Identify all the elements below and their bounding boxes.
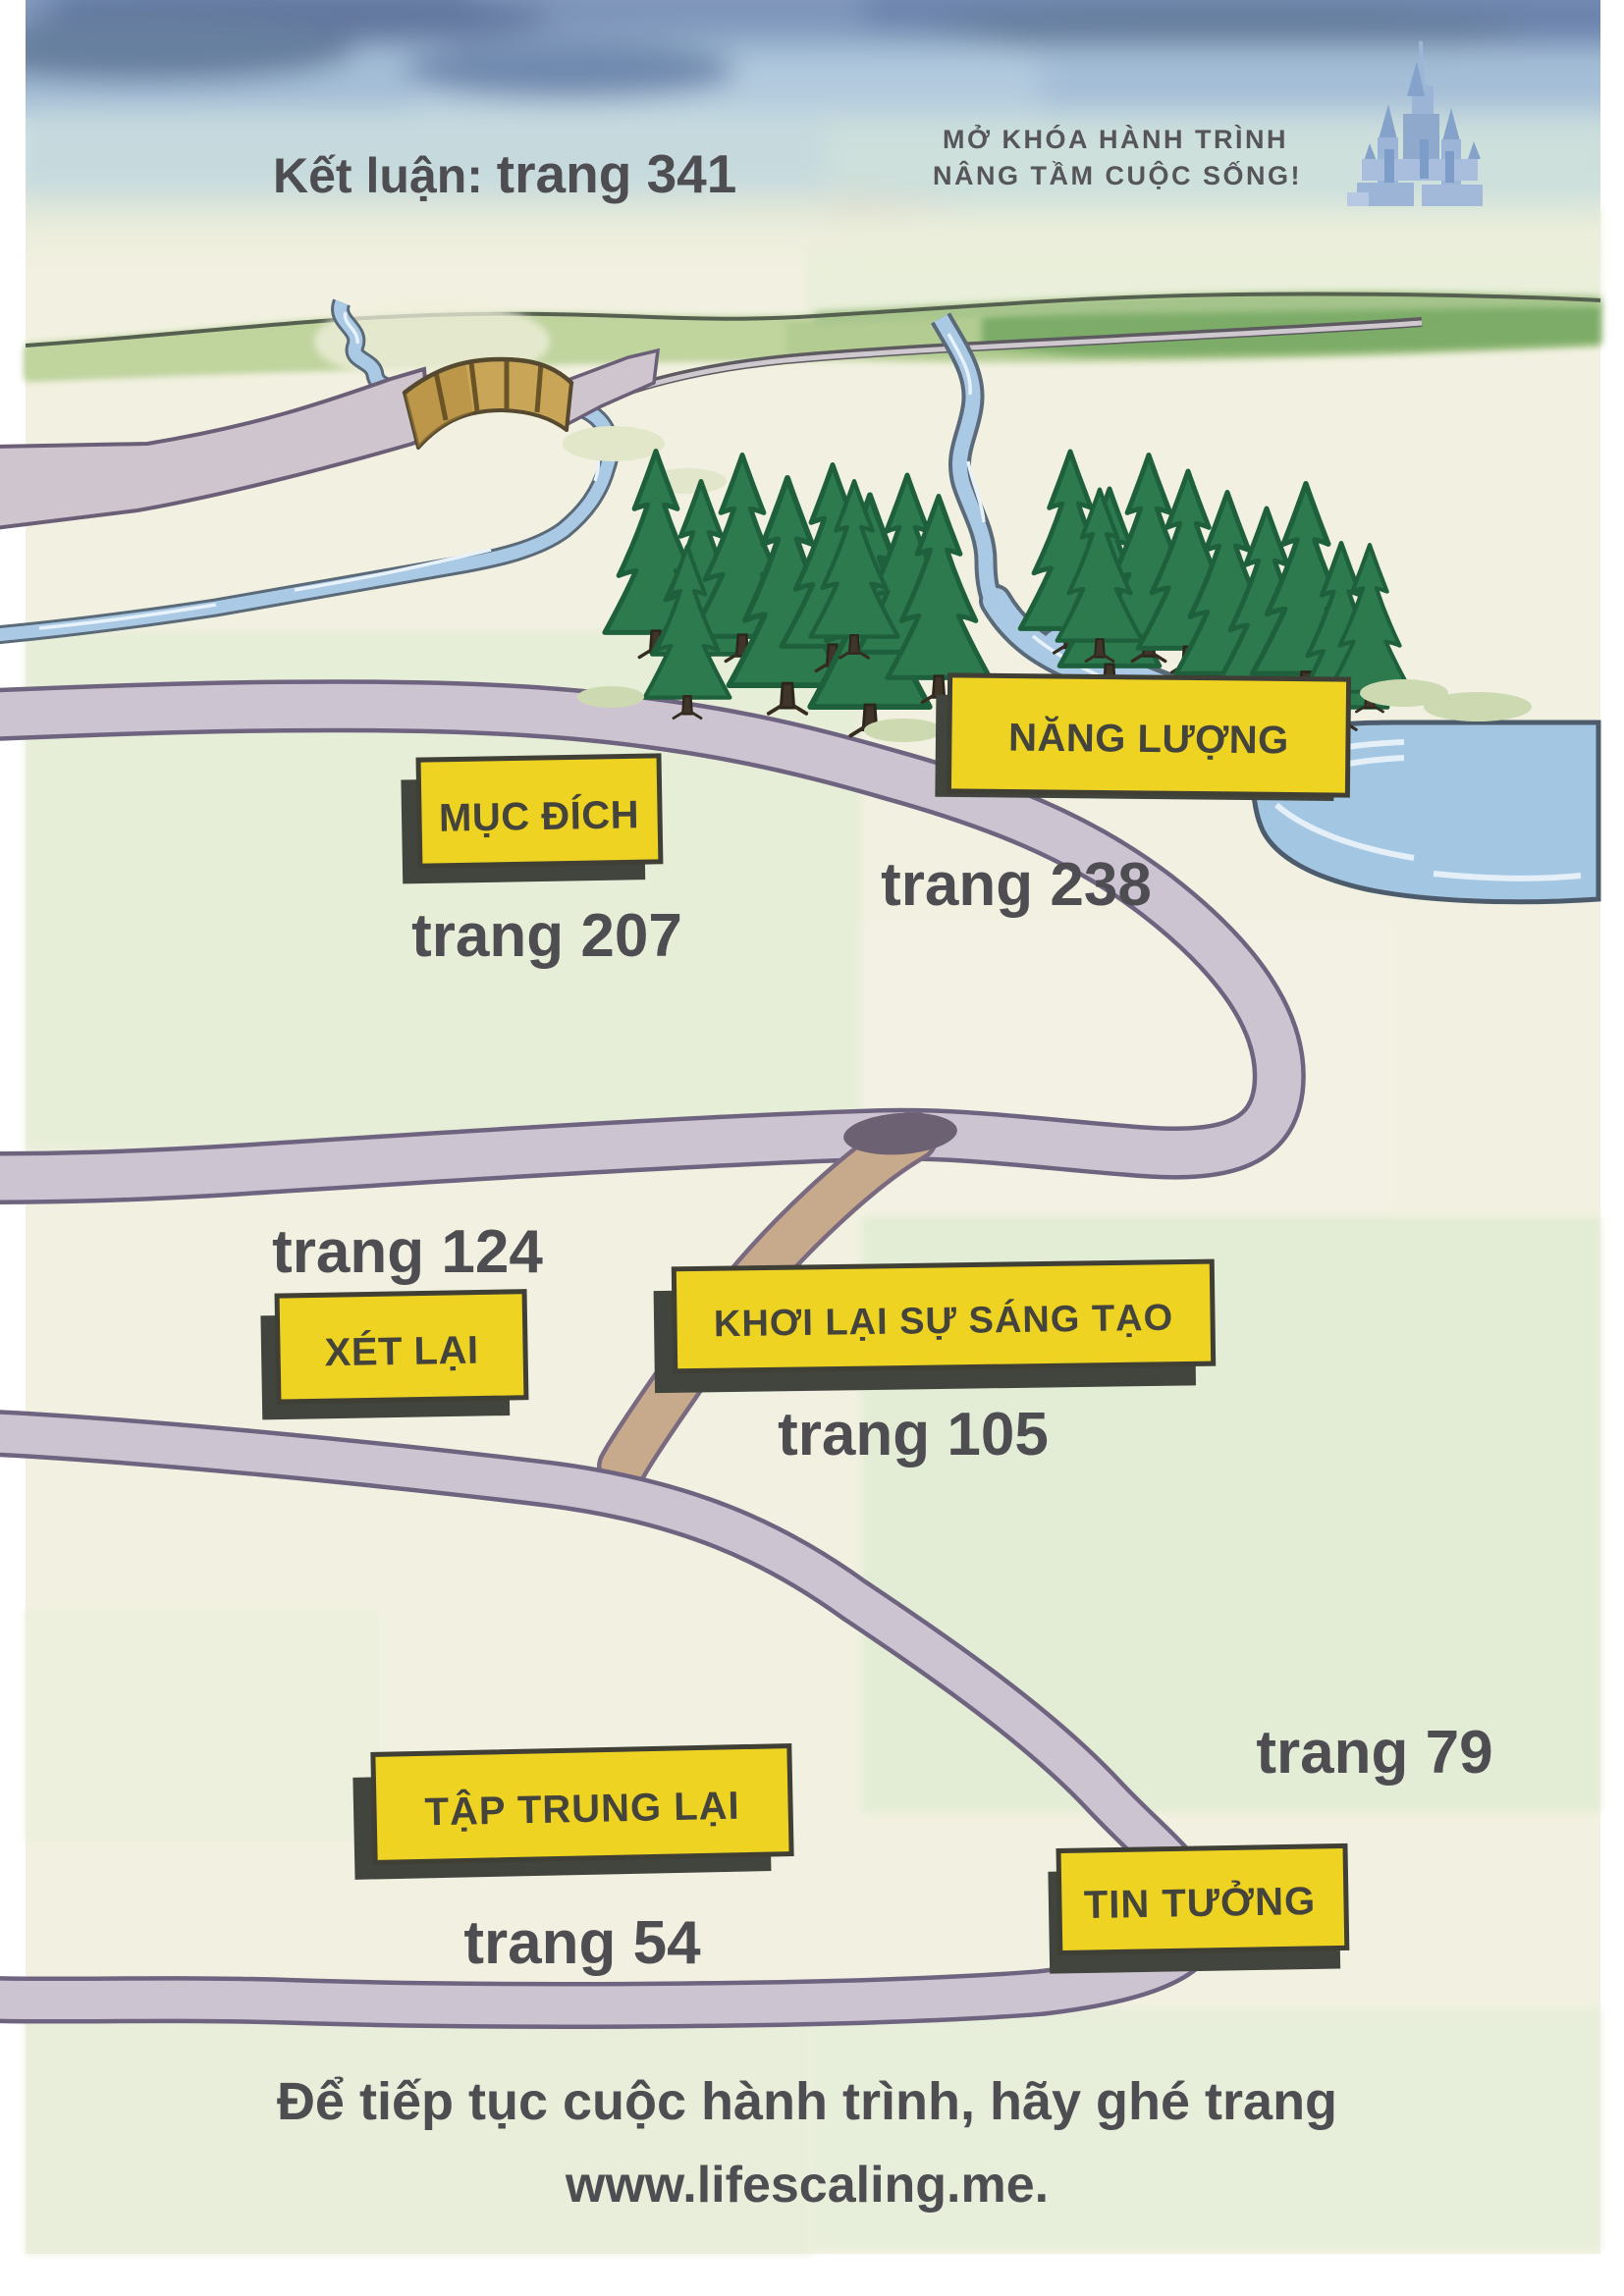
- svg-text:TẬP TRUNG LẠI: TẬP TRUNG LẠI: [424, 1783, 740, 1835]
- svg-text:trang 105: trang 105: [778, 1401, 1049, 1468]
- svg-text:XÉT LẠI: XÉT LẠI: [324, 1328, 479, 1375]
- svg-text:trang 124: trang 124: [272, 1218, 543, 1286]
- svg-text:www.lifescaling.me.: www.lifescaling.me.: [565, 2157, 1049, 2214]
- svg-text:NĂNG LƯỢNG: NĂNG LƯỢNG: [1008, 716, 1289, 763]
- svg-text:trang 207: trang 207: [411, 902, 682, 970]
- svg-text:trang 79: trang 79: [1256, 1719, 1492, 1787]
- svg-text:trang 54: trang 54: [463, 1909, 701, 1977]
- svg-text:KHƠI LẠI SỰ SÁNG TẠO: KHƠI LẠI SỰ SÁNG TẠO: [714, 1296, 1174, 1346]
- svg-text:TIN TƯỞNG: TIN TƯỞNG: [1083, 1878, 1316, 1927]
- svg-text:Kết luận: trang 341: Kết luận: trang 341: [273, 143, 736, 204]
- svg-text:MỤC ĐÍCH: MỤC ĐÍCH: [439, 792, 640, 840]
- svg-text:trang 238: trang 238: [881, 851, 1152, 919]
- svg-text:Để tiếp tục cuộc hành trình, h: Để tiếp tục cuộc hành trình, hãy ghé tra…: [277, 2072, 1337, 2131]
- svg-text:MỞ KHÓA HÀNH TRÌNH: MỞ KHÓA HÀNH TRÌNH: [943, 123, 1288, 154]
- svg-text:NÂNG TẦM CUỘC SỐNG!: NÂNG TẦM CUỘC SỐNG!: [933, 159, 1302, 190]
